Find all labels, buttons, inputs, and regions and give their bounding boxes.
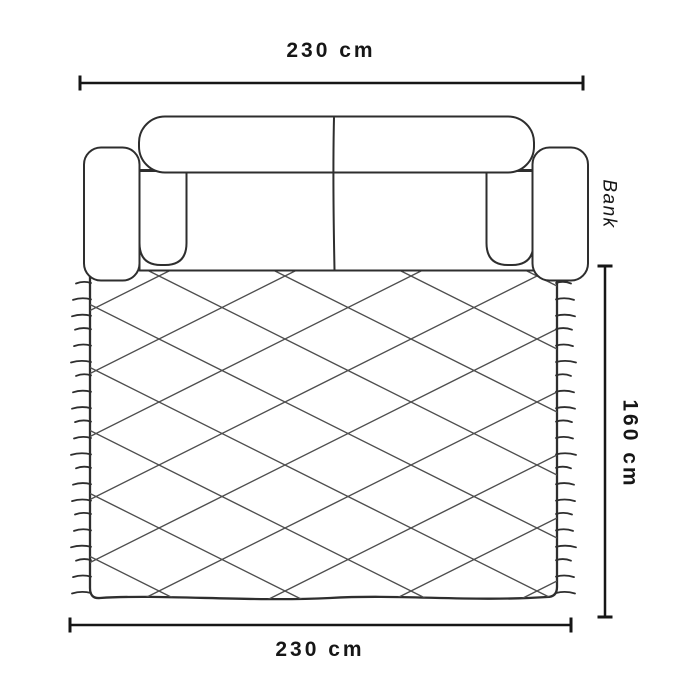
dimension-top: 230 cm	[80, 39, 583, 91]
rug-fringes-left	[71, 282, 91, 594]
rug-fringe	[73, 575, 91, 577]
sofa-armrest-right	[533, 148, 589, 281]
rug-fringe	[556, 361, 576, 363]
rug-fringes-right	[556, 282, 576, 594]
rug-fringe	[73, 483, 91, 485]
floor-plan-svg: 230 cm 230 cm 160 cm Bank	[0, 0, 700, 700]
sofa-armrest-left	[84, 148, 140, 281]
rug-fringe	[556, 559, 571, 561]
rug-fringe	[556, 407, 575, 409]
sofa-backrest	[139, 117, 534, 173]
rug-fringe	[556, 374, 571, 376]
rug-fringe	[556, 513, 572, 515]
rug-fringe	[75, 328, 91, 330]
rug-fringe	[556, 437, 573, 439]
rug-fringe	[556, 499, 575, 501]
rug-fringe	[556, 483, 574, 485]
dimension-bottom-label: 230 cm	[275, 638, 364, 661]
sofa-armrest-front-left	[140, 171, 187, 265]
rug-fringe	[73, 391, 91, 393]
rug-fringe	[71, 361, 91, 363]
rug-fringe	[556, 575, 574, 577]
rug-fringe	[74, 437, 91, 439]
rug-fringe	[76, 282, 91, 284]
rug-fringe	[556, 298, 574, 300]
rug-fringe	[556, 391, 574, 393]
rug-fringe	[72, 592, 91, 594]
rug-fringe	[556, 315, 575, 317]
sofa-armrest-front-right	[487, 171, 534, 265]
rug-fringe	[556, 344, 573, 346]
sofa	[84, 117, 588, 281]
sofa-cushion-divider-seam	[333, 118, 334, 270]
rug-fringe	[76, 374, 91, 376]
rug-fringe	[73, 298, 91, 300]
dimension-right-label: 160 cm	[619, 399, 642, 488]
rug-fringe	[556, 453, 576, 455]
rug-fringe	[71, 546, 91, 548]
rug-fringe	[72, 315, 91, 317]
rug-fringe	[556, 529, 573, 531]
rug-fringe	[76, 559, 91, 561]
floor-plan-diagram: 230 cm 230 cm 160 cm Bank	[0, 0, 700, 700]
dimension-right: 160 cm	[598, 266, 642, 617]
rug-fringe	[556, 467, 571, 469]
rug-fringe	[556, 282, 571, 284]
rug-fringe	[556, 592, 575, 594]
rug-fringe	[72, 499, 91, 501]
sofa-name-label: Bank	[599, 179, 620, 228]
rug-outline	[90, 268, 557, 599]
rug-fringe	[74, 344, 91, 346]
rug-fringe	[75, 513, 91, 515]
rug-fringe	[74, 529, 91, 531]
rug-fringe	[556, 546, 576, 548]
rug-fringe	[76, 467, 91, 469]
dimension-top-label: 230 cm	[286, 39, 375, 62]
rug-fringe	[72, 407, 91, 409]
rug-fringe	[556, 328, 572, 330]
rug-fringe	[75, 420, 91, 422]
rug-fringe	[71, 453, 91, 455]
dimension-bottom: 230 cm	[70, 618, 571, 662]
rug-fringe	[556, 420, 572, 422]
sofa-seat	[140, 170, 534, 271]
